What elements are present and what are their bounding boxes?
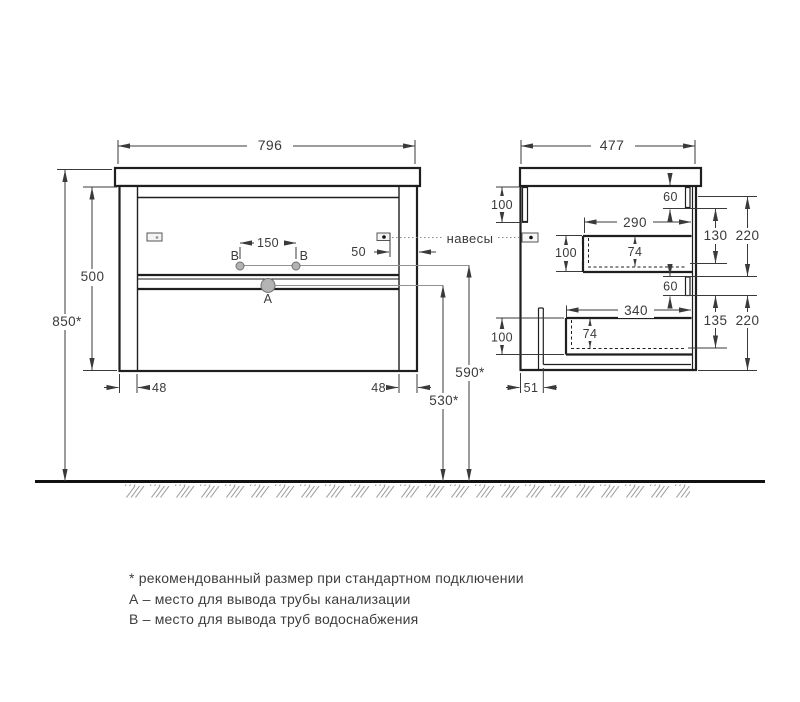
label-a: A — [264, 292, 273, 306]
hanger-bracket-left-pin — [156, 236, 159, 239]
note-drain-location: А – место для вывода трубы канализации — [129, 589, 411, 609]
dim-upper-front-height: 220 — [736, 228, 760, 243]
dim-upper-offset: 130 — [704, 228, 728, 243]
dim-lower-box-depth: 74 — [583, 327, 598, 341]
dim-upper-box-width: 290 — [623, 215, 647, 230]
dim-body-height: 500 — [81, 269, 105, 284]
dim-back-clearance: 51 — [524, 381, 539, 395]
dim-front-width: 796 — [258, 137, 283, 153]
dim-right-panel: 48 — [371, 381, 386, 395]
dim-supply-outlet-height: 590* — [455, 365, 485, 380]
dim-lower-box-width: 340 — [624, 303, 648, 318]
upper-drawer-rail — [686, 188, 691, 208]
hanger-bracket-right-pin — [382, 235, 386, 239]
dim-upper-box-height: 100 — [555, 246, 577, 260]
dim-depth: 477 — [600, 137, 625, 153]
side-hanger-pin — [529, 236, 533, 240]
supply-point-right — [292, 262, 300, 270]
dim-lower-front-height: 220 — [736, 313, 760, 328]
floor-hatching — [124, 485, 690, 498]
note-recommended-size: * рекомендованный размер при стандартном… — [129, 568, 524, 588]
dim-drain-outlet-height: 530* — [429, 393, 459, 408]
dim-bracket-offset: 50 — [351, 245, 366, 259]
label-b-left: B — [231, 249, 240, 263]
dim-upper-gap: 60 — [663, 190, 678, 204]
supply-point-left — [236, 262, 244, 270]
technical-drawing-sheet: 796 850* 500 150 50 48 48 590* 530* B B … — [0, 0, 800, 702]
side-mount-rail — [523, 188, 528, 222]
floor — [35, 482, 765, 498]
label-b-right: B — [300, 249, 309, 263]
dim-left-panel: 48 — [152, 381, 167, 395]
dim-supply-spacing: 150 — [257, 236, 279, 250]
side-countertop — [520, 168, 701, 186]
dim-upper-box-depth: 74 — [628, 245, 643, 259]
dim-lower-box-height: 100 — [491, 331, 513, 345]
hangers-label: навесы — [447, 231, 494, 246]
dim-lower-gap: 60 — [663, 280, 678, 294]
dim-mount-rail-height: 100 — [491, 198, 513, 212]
drain-point — [261, 279, 275, 293]
lower-drawer-rail — [686, 277, 691, 296]
dim-lower-offset: 135 — [704, 313, 728, 328]
hanger-bracket-left — [147, 233, 162, 241]
front-view — [115, 168, 469, 371]
front-countertop — [115, 168, 420, 186]
dim-overall-height: 850* — [52, 314, 82, 329]
note-supply-location: В – место для вывода труб водоснабжения — [129, 609, 418, 629]
